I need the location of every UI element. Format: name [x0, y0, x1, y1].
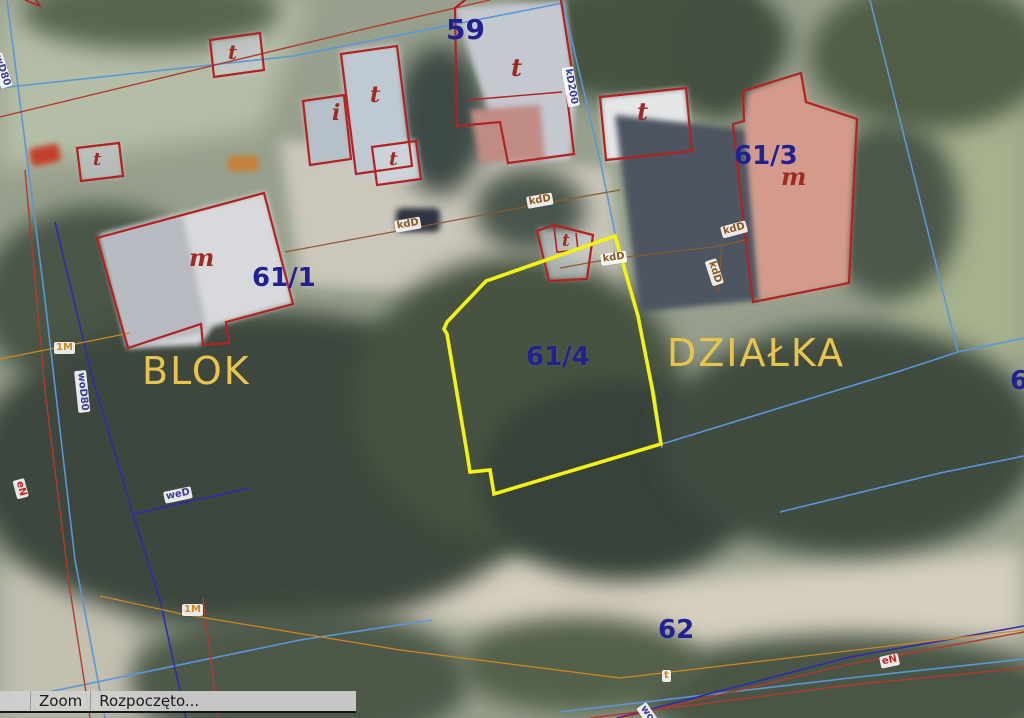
water-line: [55, 222, 186, 718]
zoom-mode-button[interactable]: Zoom: [31, 691, 90, 711]
boundary-line: [0, 620, 432, 702]
boundary-line: [7, 0, 105, 718]
building-outline-top: [455, 0, 575, 163]
building-outline-61-3: [733, 73, 857, 302]
marker-lines: [0, 333, 1024, 678]
power-line: [0, 0, 490, 117]
building-outline-blok: [97, 193, 293, 348]
power-lines: [0, 0, 1024, 718]
power-line: [25, 170, 90, 718]
status-message: Rozpoczęto...: [91, 691, 207, 711]
selected-parcel-outline-61-4: [444, 236, 661, 494]
status-bar: Zoom Rozpoczęto...: [0, 691, 356, 713]
sewer-line: [285, 190, 620, 252]
storm-sewer-lines: [285, 190, 746, 292]
map-overlay-layer: [0, 0, 1024, 718]
building-outlines: [25, 0, 857, 348]
building-outline-mid: [600, 88, 692, 160]
roof-ridge-line: [468, 92, 562, 100]
building-fragment-top: [25, 0, 40, 6]
cadastral-boundaries: [0, 0, 1024, 718]
utility-tag-t: t: [662, 670, 671, 682]
utility-tag-1M: 1M: [54, 342, 75, 354]
utility-tag-1M: 1M: [182, 604, 203, 616]
building-outline-i: [303, 95, 351, 165]
water-lines: [55, 222, 1024, 718]
status-bar-empty-cell: [0, 691, 30, 711]
building-outline-annex: [372, 141, 421, 185]
boundary-line: [563, 3, 662, 448]
boundary-line: [560, 659, 1024, 712]
boundary-line: [780, 456, 1024, 512]
building-outline-small-w: [77, 143, 123, 181]
boundary-line: [662, 338, 1024, 444]
power-line: [620, 632, 1024, 718]
map-viewport[interactable]: 59 61/1 61/3 61/4 62 6 BLOK DZIAŁKA t t …: [0, 0, 1024, 718]
boundary-line: [0, 3, 563, 88]
boundary-line: [870, 0, 958, 352]
building-outline-t-tall: [341, 46, 412, 174]
